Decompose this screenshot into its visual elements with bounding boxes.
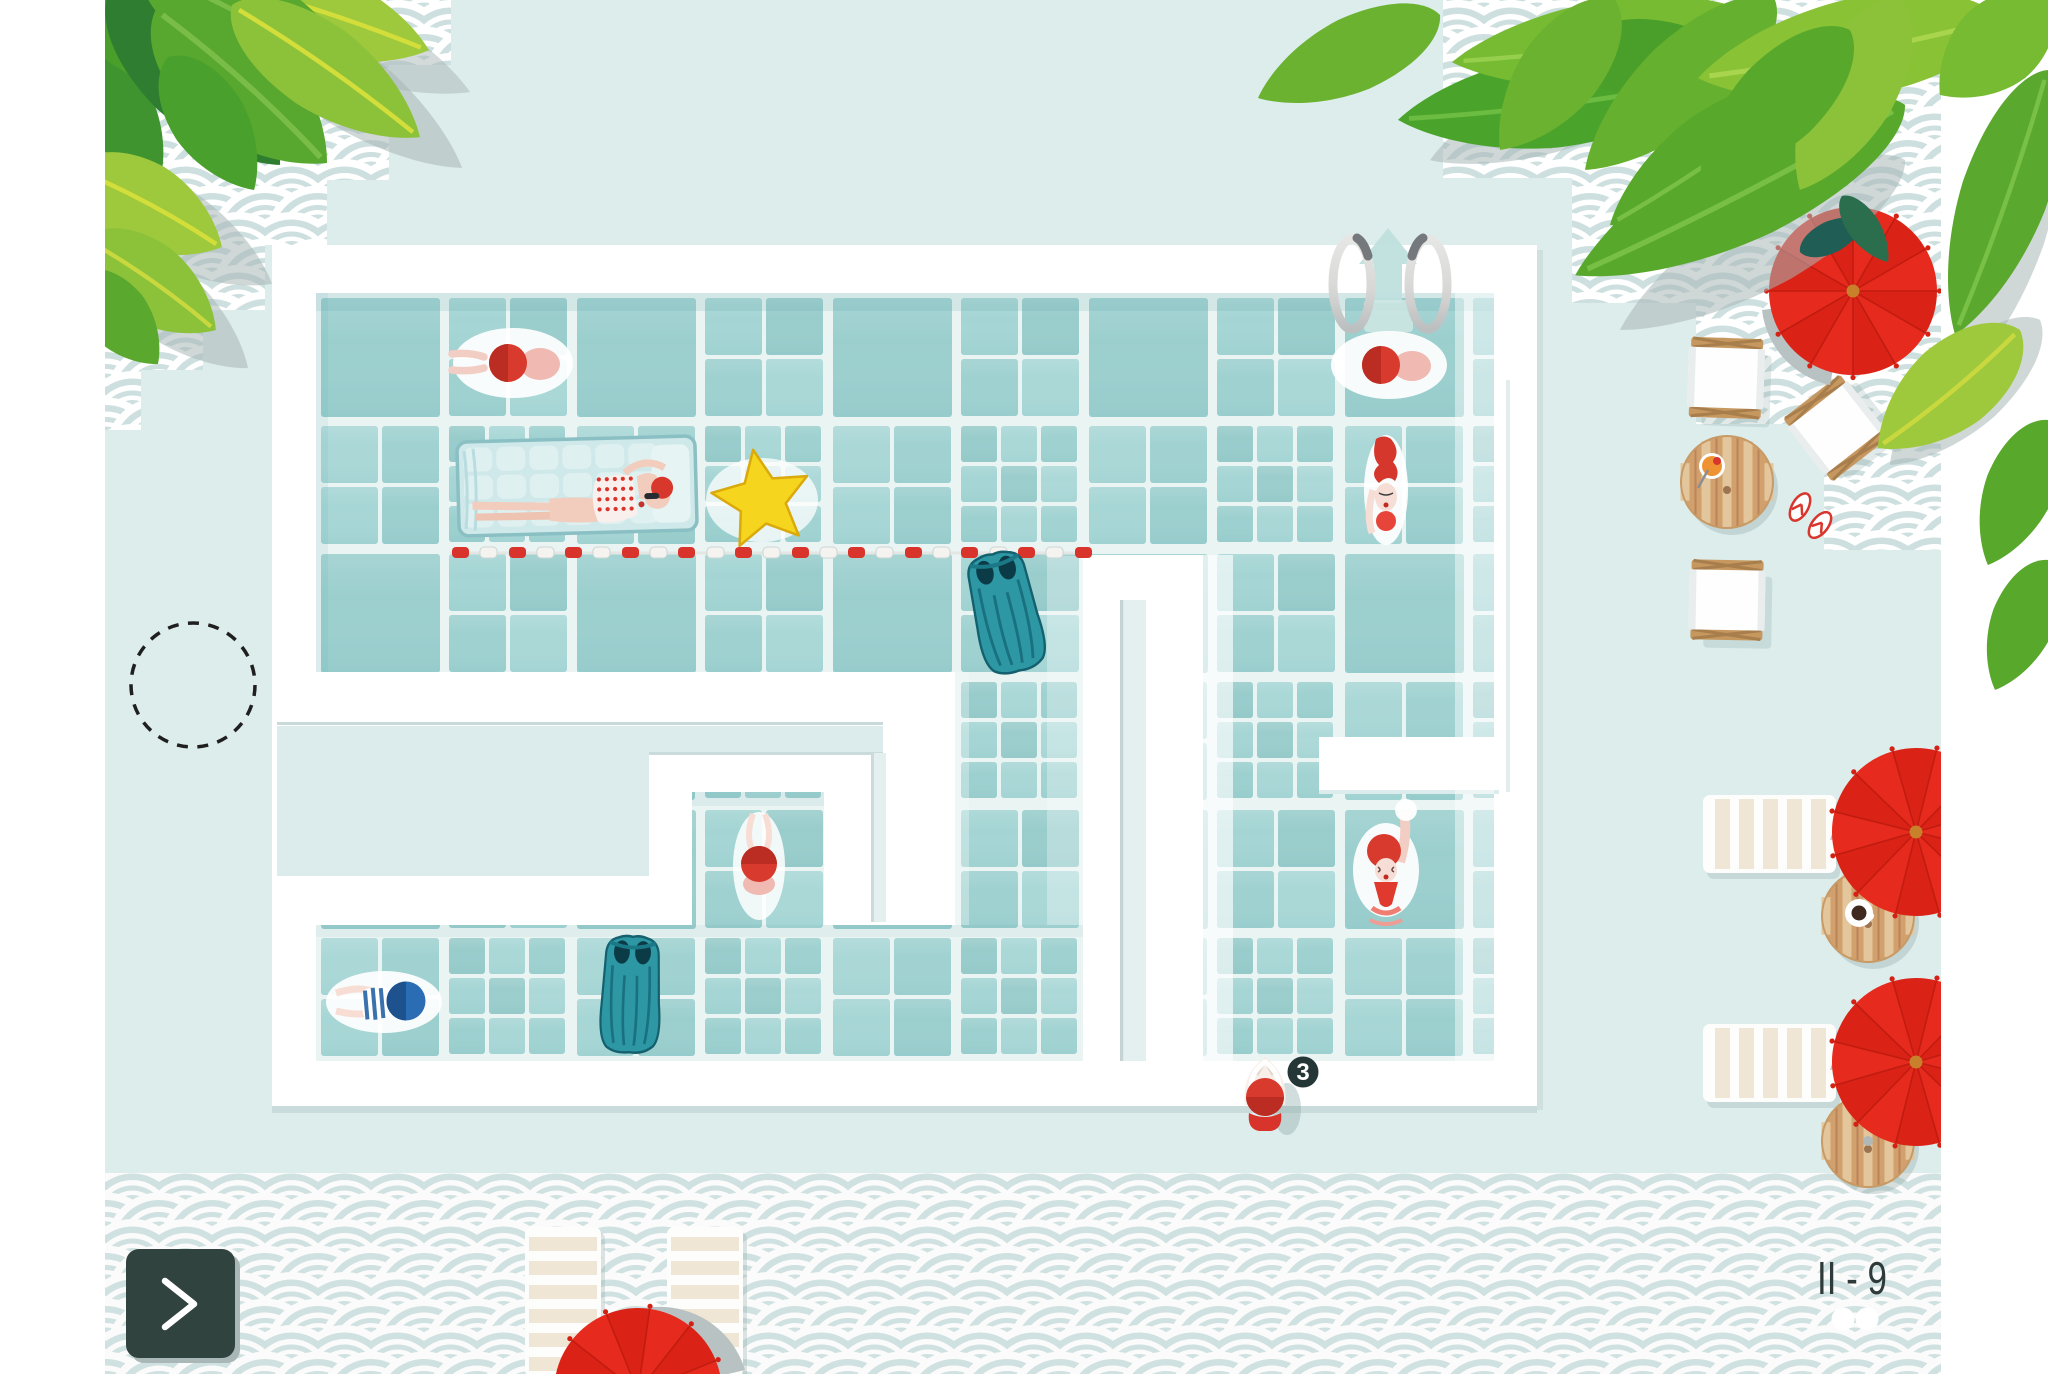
svg-text:3: 3 [1296, 1059, 1309, 1086]
svg-text:II - 9: II - 9 [1817, 1252, 1887, 1304]
